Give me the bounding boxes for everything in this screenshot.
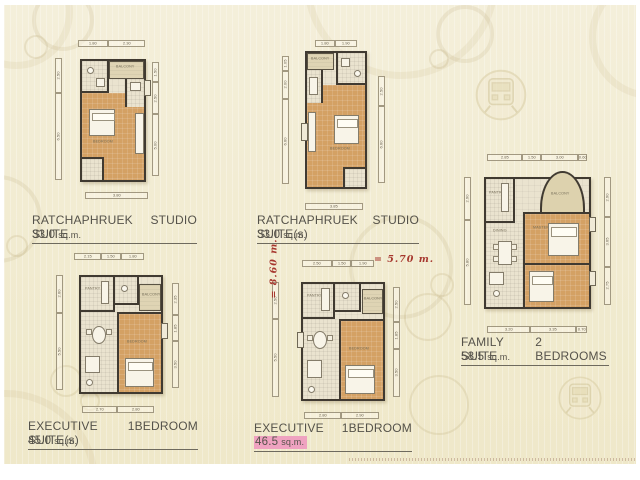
ac-ledge <box>297 332 304 348</box>
area-value: 46.5 <box>255 436 278 448</box>
dim-segment: 0.70 <box>576 326 587 333</box>
dim-segment: 3.65 <box>604 217 611 267</box>
bed <box>334 115 360 144</box>
area-unit: sq.m. <box>58 230 81 240</box>
dim-bottom: 3.80 <box>85 192 148 199</box>
plan-executive-suite-s: 2.151.501.80 2.605.50 2.351.853.50 2.702… <box>52 250 187 418</box>
dim-bottom: 3.85 <box>305 203 363 210</box>
area-value: 58.5 <box>461 351 484 363</box>
disclaimer-text <box>349 458 636 461</box>
dim-segment: 2.80 <box>304 412 341 419</box>
living <box>303 319 339 400</box>
dim-left: 2.605.50 <box>56 275 63 390</box>
pantry: PANTRY <box>303 284 335 319</box>
pantry-label: PANTRY <box>85 287 100 291</box>
dim-segment: 2.85 <box>487 154 522 161</box>
bathroom <box>82 61 109 93</box>
dim-right: 2.506.60 <box>378 76 385 183</box>
pantry: PANTRY <box>486 179 515 223</box>
plan-type: STUDIO <box>372 213 419 227</box>
pantry-label: PANTRY <box>307 294 322 298</box>
plan-area: 58.5sq.m. <box>461 351 510 363</box>
unit-outline: PANTRY BALCONY BEDROOM <box>79 275 163 394</box>
toilet-icon <box>493 290 500 297</box>
toilet-icon <box>121 285 128 292</box>
area-unit: sq.m. <box>487 352 510 362</box>
plan-area-highlighted: 46.5sq.m. <box>254 436 307 449</box>
dim-left: 1.052.006.60 <box>282 56 289 184</box>
ac-ledge <box>144 80 151 96</box>
dining: DINING <box>486 223 523 307</box>
toilet-icon <box>86 379 93 386</box>
bathroom <box>336 53 365 85</box>
ring-decoration <box>429 49 449 69</box>
wardrobe <box>308 112 316 152</box>
plan-ratchaphruek-suite-s: 1.801.90 1.052.006.60 2.506.60 3.85 BALC… <box>280 34 400 216</box>
dim-segment: 1.80 <box>78 40 108 47</box>
closet <box>343 167 365 187</box>
closet <box>82 157 104 180</box>
bed <box>345 365 375 395</box>
dim-segment: 1.05 <box>282 56 289 71</box>
ac-ledge <box>589 217 596 232</box>
living <box>81 312 117 393</box>
ac-ledge <box>589 271 596 286</box>
bathroom <box>115 277 139 305</box>
paper-canvas: 1.802.30 2.506.50 1.502.505.00 3.80 BALC… <box>4 5 636 464</box>
dim-left: 2.905.80 <box>464 177 471 305</box>
dim-segment: 0.60 <box>578 154 587 161</box>
dim-segment: 1.85 <box>172 315 179 341</box>
area-unit: sq.m. <box>283 230 306 240</box>
dim-segment: 2.30 <box>108 40 145 47</box>
handwritten-width-note: = 5.70 m. <box>374 254 434 265</box>
dim-segment: 1.50 <box>101 253 121 260</box>
area-value: 45.0 <box>28 435 51 447</box>
dim-left: 2.505.50 <box>272 282 279 397</box>
dim-segment: 2.90 <box>464 177 471 220</box>
plan-type: STUDIO <box>150 213 197 227</box>
balcony: BALCONY <box>540 171 585 215</box>
dim-segment: 2.70 <box>82 406 117 413</box>
dim-segment: 2.50 <box>393 287 400 322</box>
dim-segment: 1.50 <box>522 154 541 161</box>
ring-decoration <box>589 5 636 99</box>
plan-ratchaphruek-suite: 1.802.30 2.506.50 1.502.505.00 3.80 BALC… <box>52 35 172 210</box>
dim-left: 2.506.50 <box>55 58 62 180</box>
dim-segment: 2.50 <box>378 76 385 106</box>
dim-segment: 2.15 <box>74 253 101 260</box>
dim-top: 1.801.90 <box>315 40 357 47</box>
unit-outline: BALCONY PANTRY MASTER BEDROOM BEDROOM DI… <box>484 177 591 309</box>
train-in-circle-icon <box>474 68 528 122</box>
toilet-icon <box>308 386 315 393</box>
dim-segment: 3.80 <box>85 192 148 199</box>
dim-bottom: 3.203.350.70 <box>487 326 587 333</box>
plan-area: 33.0sq.m. <box>32 229 81 241</box>
dim-bottom: 2.702.80 <box>82 406 154 413</box>
dim-segment: 5.00 <box>152 114 159 176</box>
dim-segment: 6.50 <box>55 93 62 180</box>
ring-decoration <box>430 273 454 297</box>
unit-outline: PANTRY BALCONY BEDROOM <box>301 282 385 401</box>
dim-segment: 1.90 <box>351 260 374 267</box>
dim-bottom: 2.802.90 <box>304 412 379 419</box>
bedroom-label: BEDROOM <box>93 140 113 144</box>
ring-decoration <box>409 375 469 435</box>
plan-family-suite: 2.851.503.000.60 2.905.80 2.903.652.75 3… <box>459 150 624 340</box>
dim-segment: 2.50 <box>302 260 332 267</box>
bedroom-label: BEDROOM <box>330 147 350 151</box>
ring-decoration <box>404 293 452 341</box>
dim-segment: 1.80 <box>121 253 144 260</box>
dim-top: 2.151.501.80 <box>74 253 144 260</box>
bed <box>529 271 554 302</box>
dim-segment: 1.80 <box>315 40 335 47</box>
dim-segment: 2.90 <box>341 412 379 419</box>
area-unit: sq.m. <box>281 437 304 447</box>
dim-segment: 3.50 <box>393 349 400 397</box>
dim-segment: 3.50 <box>172 341 179 388</box>
dim-segment: 6.60 <box>282 99 289 184</box>
balcony-label: BALCONY <box>116 65 134 69</box>
dim-segment: 2.60 <box>56 275 63 313</box>
balcony-label: BALCONY <box>364 297 382 301</box>
toilet-icon <box>87 67 94 74</box>
toilet-icon <box>354 70 361 77</box>
balcony: BALCONY <box>139 284 161 312</box>
unit-outline: BALCONY BEDROOM <box>80 59 146 182</box>
dim-segment: 1.50 <box>152 62 159 82</box>
bathroom <box>335 284 361 312</box>
ring-decoration <box>6 235 28 257</box>
dim-right: 2.351.853.50 <box>172 283 179 388</box>
kitchen <box>307 70 323 102</box>
dim-segment: 3.00 <box>541 154 578 161</box>
balcony-label: BALCONY <box>311 57 329 61</box>
dim-right: 1.502.505.00 <box>152 62 159 176</box>
balcony: BALCONY <box>307 53 334 70</box>
dim-segment: 2.00 <box>282 71 289 98</box>
plan-area: 45.0sq.m. <box>28 435 77 447</box>
ac-ledge <box>301 123 308 141</box>
dim-segment: 1.90 <box>335 40 357 47</box>
bed <box>548 223 579 256</box>
balcony: BALCONY <box>109 61 144 79</box>
dim-segment: 2.50 <box>55 58 62 93</box>
balcony-label: BALCONY <box>551 192 569 196</box>
bed <box>89 109 115 136</box>
dining-label: DINING <box>493 229 507 233</box>
train-in-circle-icon <box>557 375 603 421</box>
ac-ledge <box>161 323 168 339</box>
floorplan-sheet: 1.802.30 2.506.50 1.502.505.00 3.80 BALC… <box>0 0 640 480</box>
ring-decoration <box>24 35 48 59</box>
dim-segment: 2.80 <box>117 406 154 413</box>
balcony-label: BALCONY <box>142 293 160 297</box>
handwritten-height-note: = 8.60 m. <box>269 239 280 299</box>
pantry: PANTRY <box>81 277 115 312</box>
bedroom-label: BEDROOM <box>349 347 369 351</box>
plan-type: 2 BEDROOMS <box>535 335 609 363</box>
dim-segment: 5.50 <box>272 319 279 397</box>
dim-segment: 2.90 <box>604 177 611 217</box>
area-value: 33.0 <box>32 229 55 241</box>
dim-top: 2.501.501.90 <box>302 260 374 267</box>
plan-type: 1BEDROOM <box>342 421 412 435</box>
dim-segment: 2.35 <box>172 283 179 315</box>
dim-top: 1.802.30 <box>78 40 145 47</box>
dim-segment: 5.50 <box>56 313 63 390</box>
wardrobe <box>135 113 144 153</box>
bed <box>125 358 154 388</box>
dim-segment: 3.85 <box>305 203 363 210</box>
dim-segment: 3.35 <box>530 326 575 333</box>
plan-type: 1BEDROOM <box>128 419 198 433</box>
dim-segment: 1.85 <box>393 322 400 349</box>
dim-segment: 2.75 <box>604 267 611 305</box>
balcony: BALCONY <box>362 289 383 314</box>
plan-executive-suite: 2.501.501.90 2.505.50 2.501.853.50 2.802… <box>270 255 410 423</box>
kitchen <box>125 79 144 108</box>
dim-segment: 3.20 <box>487 326 530 333</box>
dim-segment: 5.80 <box>464 220 471 305</box>
dim-top: 2.851.503.000.60 <box>487 154 587 161</box>
dim-segment: 2.50 <box>152 82 159 114</box>
dim-segment: 6.60 <box>378 106 385 183</box>
toilet-icon <box>342 292 349 299</box>
bedroom-label: BEDROOM <box>127 340 147 344</box>
plan-area: 33.0sq.m. <box>257 229 306 241</box>
dim-right: 2.903.652.75 <box>604 177 611 305</box>
unit-outline: BALCONY BEDROOM <box>305 51 367 189</box>
dim-segment: 1.50 <box>332 260 351 267</box>
area-unit: sq.m. <box>54 436 77 446</box>
dim-right: 2.501.853.50 <box>393 287 400 397</box>
